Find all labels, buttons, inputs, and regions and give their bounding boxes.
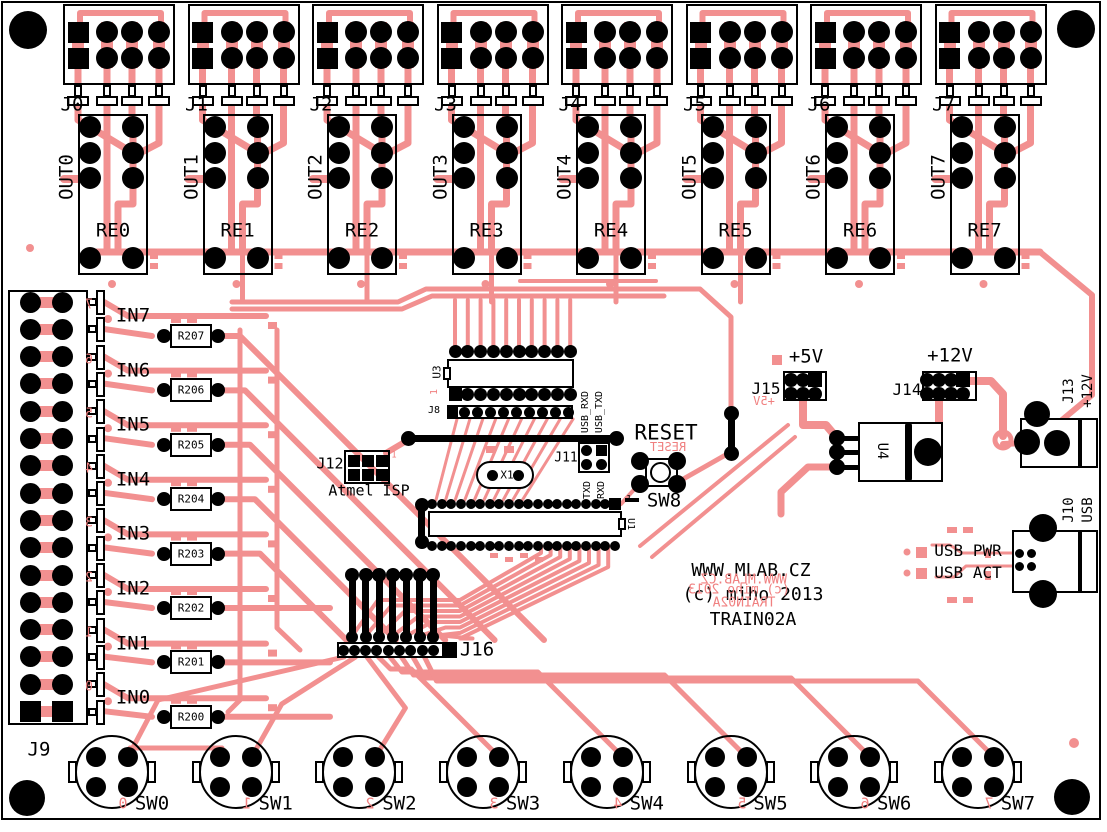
- pcb-layout-train02a: J0RE0OUT0J1RE1OUT1J2RE2OUT2J3RE3OUT3J4RE…: [0, 0, 1107, 832]
- pad: [9, 780, 45, 816]
- board-outline: [1, 1, 1101, 820]
- pad: [9, 11, 47, 49]
- component-layer: J0RE0OUT0J1RE1OUT1J2RE2OUT2J3RE3OUT3J4RE…: [0, 0, 1107, 832]
- pad: [1057, 10, 1095, 48]
- pad: [1054, 779, 1090, 815]
